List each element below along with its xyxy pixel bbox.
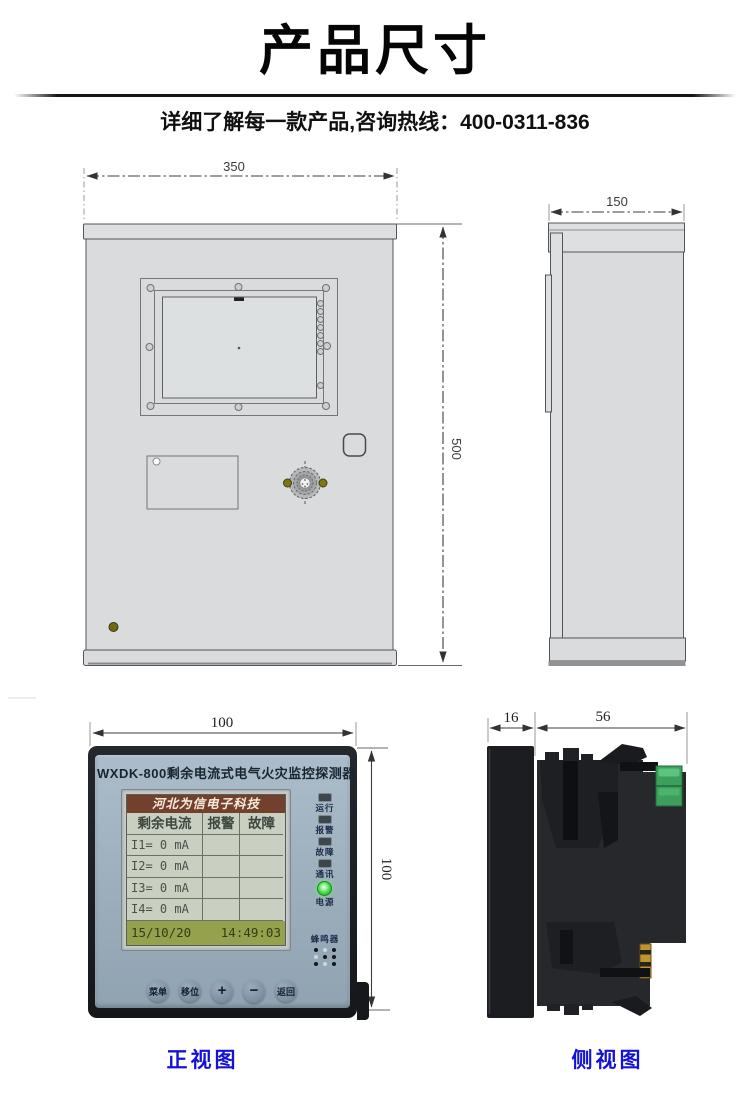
lcd-col-header: 故障 bbox=[240, 813, 283, 835]
plus-button: + bbox=[211, 980, 233, 1003]
screw-icon bbox=[147, 285, 154, 292]
lcd-status-bar: 15/10/20 14:49:03 bbox=[127, 921, 285, 946]
screw-icon bbox=[323, 403, 330, 410]
label-pin-hole bbox=[153, 458, 160, 465]
lcd-row-alarm bbox=[203, 899, 240, 921]
cabinet-front-view: 350 bbox=[84, 159, 465, 666]
status-led-stack: 运行 报警 故障 通讯 电源 bbox=[307, 793, 343, 909]
led-indicator-icon bbox=[318, 793, 332, 802]
lcd-row-value: I2= 0 mA bbox=[127, 856, 203, 878]
buzzer-holes-icon bbox=[314, 948, 336, 966]
shift-button: 移位 bbox=[179, 980, 201, 1002]
din-clip-icon bbox=[563, 748, 579, 761]
lcd-row-fault bbox=[240, 856, 283, 878]
led-indicator-icon bbox=[317, 881, 332, 896]
side-tab bbox=[357, 982, 369, 1020]
led-alarm: 报警 bbox=[315, 815, 334, 835]
led-indicator-icon bbox=[318, 837, 332, 846]
door-hinge bbox=[546, 275, 552, 412]
minus-button: − bbox=[243, 980, 265, 1003]
lcd-row-fault bbox=[240, 878, 283, 900]
device-button-row: 菜单 移位 + − 返回 bbox=[147, 979, 297, 1003]
faint-watermark-mark bbox=[8, 697, 36, 699]
screw-icon bbox=[235, 404, 242, 411]
detector-height-dim: 100 bbox=[378, 858, 394, 881]
lcd-col-header: 报警 bbox=[203, 813, 240, 835]
buzzer: 蜂鸣器 bbox=[303, 933, 347, 966]
lcd-row-value: I1= 0 mA bbox=[127, 835, 203, 857]
lcd-row-value: I3= 0 mA bbox=[127, 878, 203, 900]
cabinet-lid bbox=[84, 224, 397, 239]
lcd-table: 剩余电流 报警 故障 I1= 0 mA I2= 0 mA I3= 0 mA I4… bbox=[127, 813, 285, 921]
din-clip-icon bbox=[581, 754, 593, 761]
lcd-time: 14:49:03 bbox=[221, 925, 281, 940]
indicator-dot bbox=[284, 479, 292, 487]
lcd-row-alarm bbox=[203, 878, 240, 900]
din-clip-icon bbox=[564, 1004, 579, 1015]
base-shadow bbox=[549, 661, 686, 666]
corner-indicator-dot bbox=[109, 623, 118, 632]
detector-side-bezel bbox=[487, 746, 534, 1018]
product-dimensions-page: 产品尺寸 详细了解每一款产品,咨询热线：400-0311-836 350 bbox=[0, 0, 750, 1097]
screw-icon bbox=[146, 344, 153, 351]
screw-icon bbox=[323, 285, 330, 292]
detector-model-title: WXDK-800剩余电流式电气火灾监控探测器 bbox=[97, 763, 348, 782]
cabinet-width-dim: 350 bbox=[223, 159, 245, 174]
lcd-row-value: I4= 0 mA bbox=[127, 899, 203, 921]
led-comm: 通讯 bbox=[315, 859, 334, 879]
lcd-row-fault bbox=[240, 835, 283, 857]
led-fault: 故障 bbox=[315, 837, 334, 857]
back-button: 返回 bbox=[275, 980, 297, 1002]
lcd-row-fault bbox=[240, 899, 283, 921]
cabinet-side-base bbox=[550, 638, 686, 661]
led-run: 运行 bbox=[315, 793, 334, 813]
cabinet-height-dim: 500 bbox=[449, 438, 464, 460]
screen-center-dot bbox=[238, 347, 241, 350]
cabinet-depth-dim: 150 bbox=[606, 194, 628, 209]
lcd-frame: 河北为信电子科技 剩余电流 报警 故障 I1= 0 mA I2= 0 mA I3… bbox=[121, 789, 291, 951]
buzzer-label: 蜂鸣器 bbox=[303, 933, 347, 945]
detector-width-dim: 100 bbox=[211, 715, 234, 731]
din-clip-icon bbox=[547, 1004, 560, 1011]
lcd-brand-banner: 河北为信电子科技 bbox=[127, 795, 285, 813]
terminal-block bbox=[656, 766, 682, 806]
detector-panel: WXDK-800剩余电流式电气火灾监控探测器 河北为信电子科技 剩余电流 报警 … bbox=[95, 755, 350, 1008]
din-clip-icon bbox=[582, 1004, 593, 1010]
caption-side-view: 侧视图 bbox=[555, 1044, 660, 1074]
lcd-row-alarm bbox=[203, 835, 240, 857]
cabinet-side-view: 150 bbox=[546, 194, 686, 666]
lcd-screen: 河北为信电子科技 剩余电流 报警 故障 I1= 0 mA I2= 0 mA I3… bbox=[126, 794, 286, 946]
indicator-dot bbox=[319, 479, 327, 487]
screw-icon bbox=[147, 403, 154, 410]
lcd-row-alarm bbox=[203, 856, 240, 878]
screw-icon bbox=[235, 284, 242, 291]
vent-comb bbox=[620, 762, 658, 771]
led-power: 电源 bbox=[315, 881, 334, 907]
menu-button: 菜单 bbox=[147, 980, 169, 1002]
cabinet-door-edge bbox=[551, 233, 563, 654]
caption-front-view: 正视图 bbox=[150, 1044, 255, 1074]
bezel-depth-dim: 16 bbox=[504, 710, 520, 726]
cabinet-side-lid bbox=[549, 223, 685, 252]
led-indicator-icon bbox=[318, 815, 332, 824]
body-depth-dim: 56 bbox=[596, 709, 612, 725]
lcd-col-header: 剩余电流 bbox=[127, 813, 203, 835]
screw-icon bbox=[324, 343, 331, 350]
screen-top-tab bbox=[234, 298, 244, 302]
din-clip-icon bbox=[545, 752, 559, 761]
lcd-date: 15/10/20 bbox=[131, 925, 191, 940]
cabinet-side-body bbox=[563, 252, 684, 638]
detector-front-photo: WXDK-800剩余电流式电气火灾监控探测器 河北为信电子科技 剩余电流 报警 … bbox=[88, 746, 357, 1018]
vent-comb bbox=[600, 968, 650, 977]
detector-side-view: 16 56 bbox=[487, 709, 687, 1018]
led-indicator-icon bbox=[318, 859, 332, 868]
